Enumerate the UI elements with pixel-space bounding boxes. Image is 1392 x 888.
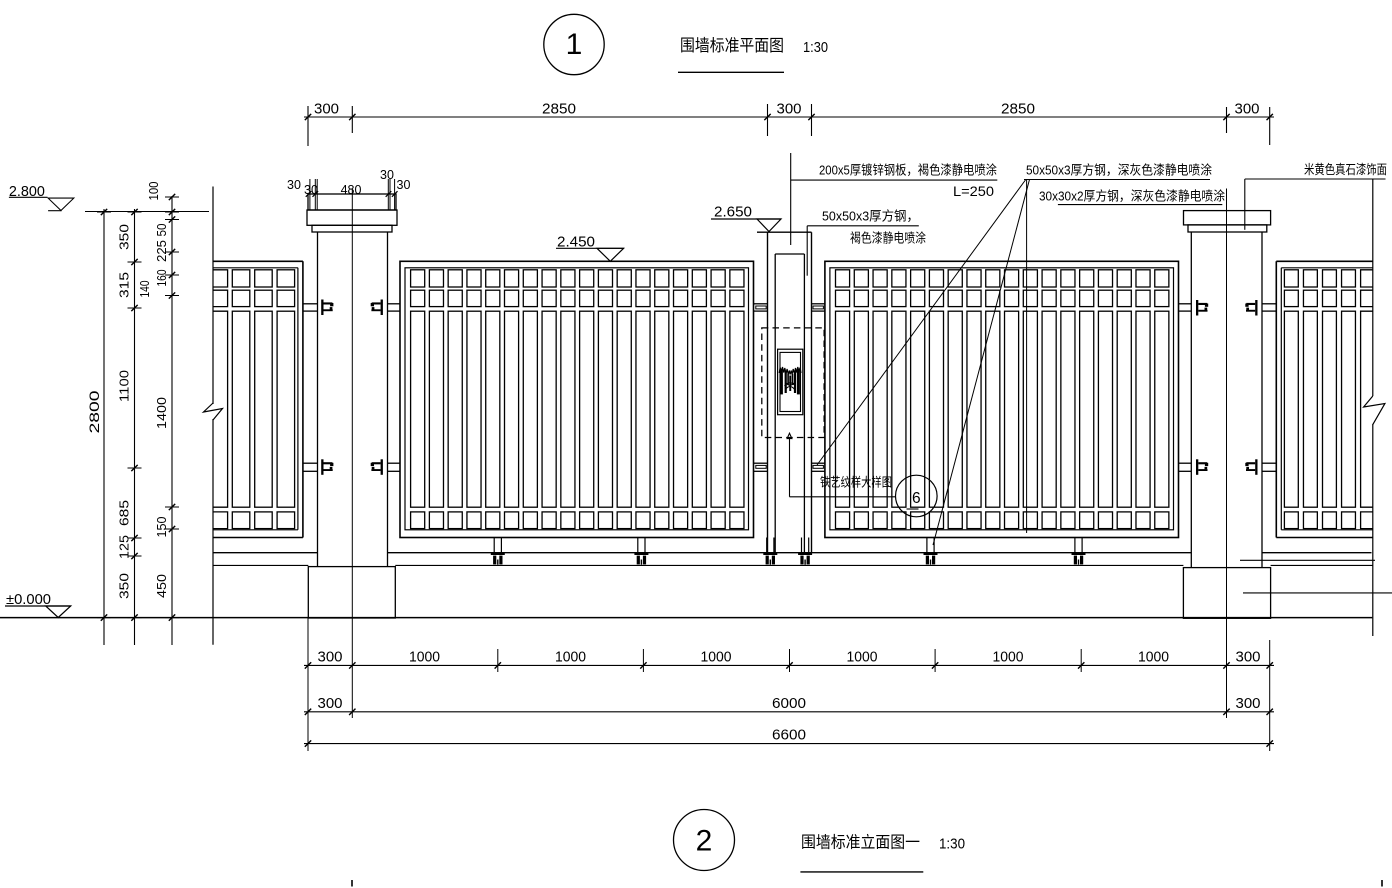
svg-text:300: 300 <box>777 102 802 118</box>
svg-text:1000: 1000 <box>555 650 586 666</box>
svg-text:2: 2 <box>696 825 713 858</box>
svg-text:30: 30 <box>304 183 318 197</box>
svg-text:1100: 1100 <box>117 370 132 402</box>
svg-text:围墙标准平面图: 围墙标准平面图 <box>680 36 784 55</box>
svg-text:2.650: 2.650 <box>714 204 752 221</box>
svg-text:30x30x2厚方钢，深灰色漆静电喷涂: 30x30x2厚方钢，深灰色漆静电喷涂 <box>1039 189 1225 204</box>
svg-text:1:30: 1:30 <box>939 836 965 853</box>
svg-text:160: 160 <box>155 269 169 286</box>
svg-text:L=250: L=250 <box>953 184 994 199</box>
svg-text:685: 685 <box>117 500 132 526</box>
svg-text:1: 1 <box>566 28 583 61</box>
svg-text:1000: 1000 <box>701 650 732 666</box>
svg-text:140: 140 <box>138 280 152 297</box>
svg-text:50x50x3厚方钢，: 50x50x3厚方钢， <box>822 209 919 224</box>
svg-text:2850: 2850 <box>1001 102 1035 118</box>
svg-text:300: 300 <box>1236 696 1261 712</box>
svg-text:350: 350 <box>117 573 132 599</box>
svg-text:2800: 2800 <box>87 391 102 434</box>
svg-text:围墙标准立面图一: 围墙标准立面图一 <box>801 834 920 852</box>
svg-text:150: 150 <box>155 516 169 537</box>
svg-text:480: 480 <box>341 183 362 197</box>
svg-text:100: 100 <box>147 181 161 200</box>
svg-text:50: 50 <box>155 223 169 236</box>
svg-text:225: 225 <box>155 240 169 262</box>
svg-text:褐色漆静电喷涂: 褐色漆静电喷涂 <box>850 231 926 246</box>
svg-text:6000: 6000 <box>772 696 806 712</box>
svg-text:30: 30 <box>380 168 394 182</box>
svg-text:315: 315 <box>117 272 132 298</box>
svg-text:30: 30 <box>287 178 301 192</box>
svg-text:6600: 6600 <box>772 728 806 744</box>
svg-text:300: 300 <box>318 650 343 666</box>
svg-text:300: 300 <box>314 102 339 118</box>
svg-text:米黄色真石漆饰面: 米黄色真石漆饰面 <box>1304 162 1387 177</box>
svg-text:450: 450 <box>155 574 169 598</box>
svg-text:300: 300 <box>1236 650 1261 666</box>
svg-text:300: 300 <box>1235 102 1260 118</box>
svg-text:1400: 1400 <box>155 397 169 429</box>
svg-text:6: 6 <box>912 490 921 507</box>
svg-text:1000: 1000 <box>847 650 878 666</box>
svg-text:50x50x3厚方钢，深灰色漆静电喷涂: 50x50x3厚方钢，深灰色漆静电喷涂 <box>1026 163 1212 178</box>
svg-text:2850: 2850 <box>542 102 576 118</box>
svg-text:125: 125 <box>117 535 132 559</box>
svg-text:1000: 1000 <box>993 650 1024 666</box>
svg-text:1000: 1000 <box>1138 650 1169 666</box>
svg-text:300: 300 <box>318 696 343 712</box>
svg-text:350: 350 <box>117 224 132 250</box>
svg-text:30: 30 <box>397 178 411 192</box>
svg-text:200x5厚镀锌钢板，褐色漆静电喷涂: 200x5厚镀锌钢板，褐色漆静电喷涂 <box>819 163 997 178</box>
svg-text:铁艺纹样大样图: 铁艺纹样大样图 <box>820 475 892 490</box>
svg-text:1000: 1000 <box>409 650 440 666</box>
svg-text:1:30: 1:30 <box>803 39 828 56</box>
